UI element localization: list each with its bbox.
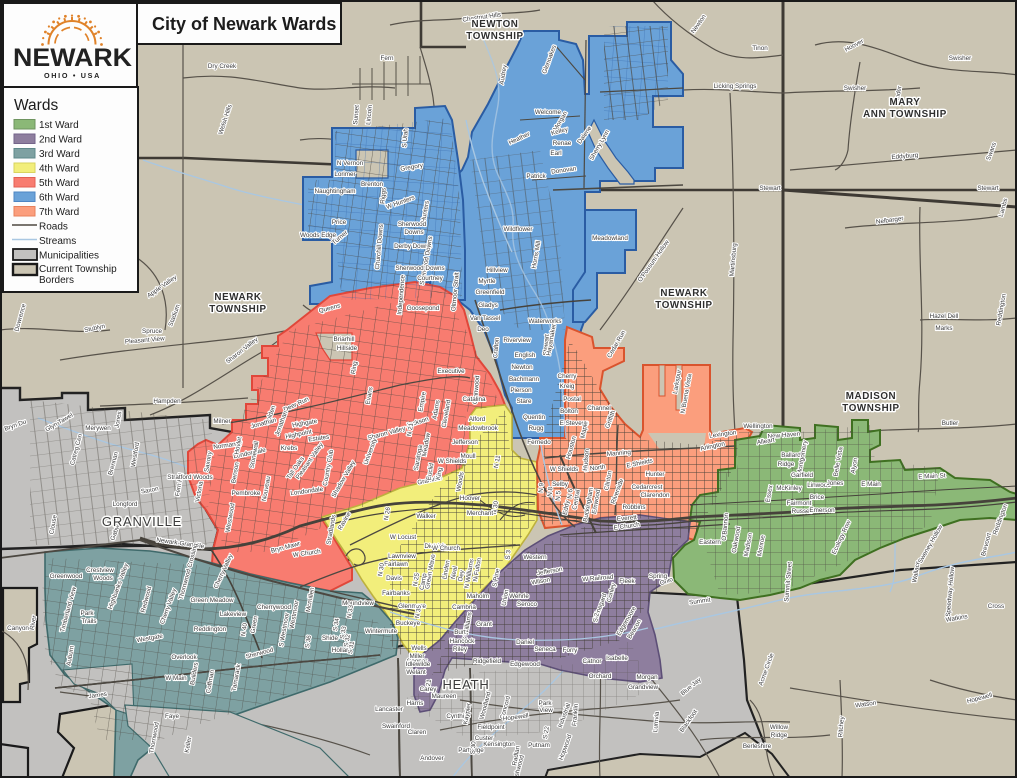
svg-text:Quentin: Quentin [523,414,546,421]
svg-text:Ridge: Ridge [778,461,795,468]
svg-text:Van Tassel: Van Tassel [470,315,500,322]
svg-text:7th Ward: 7th Ward [39,207,79,218]
svg-text:Marks: Marks [935,325,952,332]
svg-text:Davis: Davis [386,575,402,582]
svg-text:Swisher: Swisher [844,85,866,92]
svg-text:Walker: Walker [416,513,435,520]
svg-text:TOWNSHIP: TOWNSHIP [655,300,712,311]
svg-text:Buckeye: Buckeye [396,620,421,627]
svg-text:Hancock: Hancock [450,638,475,645]
svg-text:2nd Ward: 2nd Ward [39,135,82,146]
svg-text:Postal: Postal [563,396,581,403]
svg-text:Tinon: Tinon [752,45,768,52]
svg-text:Channel: Channel [587,405,610,412]
svg-text:Fern: Fern [381,55,394,62]
svg-text:Roads: Roads [39,222,68,233]
svg-text:W Main: W Main [165,675,187,682]
svg-text:Merywen: Merywen [85,425,111,432]
svg-text:S 30: S 30 [469,741,477,755]
svg-text:Forry: Forry [563,647,579,654]
svg-text:Bolton: Bolton [560,408,578,415]
svg-text:Kensington: Kensington [483,741,515,748]
svg-text:Fieldpoint: Fieldpoint [477,724,505,731]
svg-text:Price: Price [332,219,347,226]
svg-text:Jones: Jones [827,480,844,487]
svg-text:Patrick: Patrick [526,173,546,180]
svg-text:Woods: Woods [93,575,112,582]
svg-text:Hazel Dell: Hazel Dell [930,313,959,320]
svg-text:English: English [515,352,536,359]
svg-text:Krebs: Krebs [281,445,297,452]
svg-text:Stare: Stare [516,398,532,405]
svg-text:Shide: Shide [322,635,339,642]
svg-text:Milner: Milner [213,418,230,425]
svg-text:Edgewood: Edgewood [510,661,540,668]
svg-text:Cedarcrest: Cedarcrest [632,484,663,491]
svg-text:Kreig: Kreig [560,383,575,390]
svg-text:Stewart: Stewart [759,185,781,192]
svg-text:Dry Creek: Dry Creek [208,63,237,70]
svg-text:Isabelle: Isabelle [606,655,628,662]
svg-text:Renae: Renae [553,140,572,147]
svg-text:Idlewilde: Idlewilde [406,661,431,668]
svg-text:NEWARK: NEWARK [660,288,707,299]
svg-text:Fairlawn: Fairlawn [384,561,408,568]
svg-text:Spruce: Spruce [142,328,162,335]
svg-text:E Main St: E Main St [918,472,946,480]
svg-text:N 5: N 5 [555,490,563,501]
svg-text:Stratford Woods: Stratford Woods [167,474,212,481]
svg-text:Trails: Trails [81,618,96,625]
svg-text:Municipalities: Municipalities [39,251,99,262]
svg-text:Swainford: Swainford [382,723,410,730]
svg-text:City of Newark Wards: City of Newark Wards [152,14,336,34]
svg-text:Hollar: Hollar [332,647,348,654]
svg-text:Lakeview: Lakeview [220,611,247,618]
svg-text:Wells: Wells [411,645,426,652]
svg-text:Robbins: Robbins [622,504,645,511]
svg-text:Hillside: Hillside [337,345,358,352]
svg-text:Deo: Deo [477,326,489,333]
svg-text:Butler: Butler [942,420,958,427]
svg-text:ANN TOWNSHIP: ANN TOWNSHIP [863,109,947,120]
svg-text:Emerson: Emerson [809,507,835,514]
svg-text:W Shields: W Shields [438,458,466,465]
svg-text:Orchard: Orchard [589,673,612,680]
svg-text:S 3: S 3 [505,549,513,560]
svg-text:Sherwood Downs: Sherwood Downs [395,265,444,272]
svg-text:Eastern: Eastern [699,539,721,546]
svg-text:Cross: Cross [988,603,1004,610]
svg-text:Bachmann: Bachmann [509,376,540,383]
svg-text:Borders: Borders [39,275,74,286]
svg-text:Riverview: Riverview [503,337,531,344]
svg-text:Meadowbrook: Meadowbrook [458,425,498,432]
svg-text:Brenton: Brenton [361,181,384,188]
svg-text:TOWNSHIP: TOWNSHIP [466,31,523,42]
svg-text:Wildflower: Wildflower [503,226,532,233]
svg-text:Stewart: Stewart [977,185,999,192]
svg-text:Welant: Welant [406,669,426,676]
svg-text:Seneca: Seneca [534,646,556,653]
svg-text:Greenfield: Greenfield [475,289,505,296]
svg-text:Reddington: Reddington [194,626,227,633]
svg-text:Daniel: Daniel [516,639,534,646]
svg-text:NEWARK: NEWARK [214,292,261,303]
svg-text:Waterworks: Waterworks [528,318,561,325]
svg-text:Pierson: Pierson [510,387,532,394]
svg-text:Wellington: Wellington [743,423,773,430]
svg-text:N 6: N 6 [567,488,575,499]
svg-text:Woods Edge: Woods Edge [300,232,336,239]
svg-text:Green Meadow: Green Meadow [190,597,234,604]
svg-text:Welcome: Welcome [535,109,562,116]
svg-text:Western: Western [523,554,547,561]
svg-text:Goosepond: Goosepond [407,305,440,312]
svg-text:3rd Ward: 3rd Ward [39,149,80,160]
svg-text:Berleshire: Berleshire [743,743,772,750]
svg-text:Burt: Burt [454,629,466,636]
svg-text:Wehrle: Wehrle [509,593,529,600]
svg-text:W Locust: W Locust [390,534,416,541]
svg-text:Grandview: Grandview [628,684,659,691]
svg-text:Faye: Faye [165,713,179,720]
svg-text:Seroco: Seroco [517,601,537,608]
svg-text:Ridge: Ridge [771,732,788,739]
svg-text:Willow: Willow [770,724,789,731]
svg-text:Lorimer: Lorimer [334,171,355,178]
svg-text:Streams: Streams [39,236,76,247]
svg-text:Riley: Riley [453,646,468,653]
svg-text:HEATH: HEATH [442,677,489,692]
svg-text:Merchant: Merchant [467,510,493,517]
svg-text:W Shields: W Shields [550,466,578,473]
svg-text:Greenwood: Greenwood [50,573,83,580]
svg-text:E Main: E Main [861,481,881,488]
svg-text:Naughtingham: Naughtingham [315,188,356,195]
svg-text:Newton: Newton [511,364,533,371]
svg-text:Morgan: Morgan [636,674,658,681]
svg-text:Lawnview: Lawnview [388,553,416,560]
svg-text:Hillview: Hillview [486,267,508,274]
svg-text:Alford: Alford [469,416,486,423]
svg-text:TOWNSHIP: TOWNSHIP [209,304,266,315]
svg-text:Courtney: Courtney [417,275,443,282]
svg-text:Downs: Downs [404,229,423,236]
svg-text:TOWNSHIP: TOWNSHIP [842,403,899,414]
svg-text:Jefferson: Jefferson [452,439,478,446]
svg-text:Catalina: Catalina [462,396,486,403]
svg-text:Clarendon: Clarendon [640,492,670,499]
svg-text:Cherrywood: Cherrywood [257,604,291,611]
svg-text:Cambria: Cambria [452,604,476,611]
svg-text:McKinley: McKinley [776,485,802,492]
svg-text:Park: Park [539,700,553,707]
svg-text:Garfield: Garfield [791,472,814,479]
svg-text:Lancaster: Lancaster [375,706,403,713]
svg-text:Maureen: Maureen [432,693,457,700]
svg-text:N 8: N 8 [547,486,555,497]
svg-text:Overlook: Overlook [171,654,197,661]
svg-text:1st Ward: 1st Ward [39,120,79,131]
svg-text:Fleek: Fleek [619,578,635,585]
svg-text:Riggs: Riggs [379,188,387,205]
svg-text:Selby: Selby [552,481,569,488]
svg-text:Grant: Grant [476,621,492,628]
svg-text:Fernedo: Fernedo [527,439,551,446]
svg-text:Catnor: Catnor [583,658,602,665]
svg-text:W Church: W Church [432,545,460,552]
svg-text:Swisher: Swisher [949,55,971,62]
svg-text:Earl: Earl [550,150,561,157]
svg-text:Current Township: Current Township [39,264,117,275]
svg-text:Putnam: Putnam [528,742,550,749]
svg-text:Spring: Spring [649,573,668,580]
svg-text:Longford: Longford [113,501,138,508]
svg-text:NEWARK: NEWARK [13,44,132,72]
svg-text:Pembroke: Pembroke [232,490,261,497]
svg-text:Carey: Carey [420,686,438,693]
svg-text:Claren: Claren [408,729,427,736]
svg-text:Park: Park [81,610,95,617]
svg-text:Sherwood: Sherwood [398,221,427,228]
svg-text:Executive: Executive [437,368,465,375]
svg-text:5th Ward: 5th Ward [39,178,79,189]
svg-text:GRANVILLE: GRANVILLE [102,514,182,529]
svg-text:N 9: N 9 [538,482,546,493]
svg-text:Meadowland: Meadowland [592,235,628,242]
svg-text:Maholm: Maholm [467,593,489,600]
svg-text:Cherry: Cherry [558,373,578,380]
svg-text:Brice: Brice [810,494,825,501]
svg-text:Hoover: Hoover [460,495,480,502]
svg-text:Briarhill: Briarhill [334,336,355,343]
svg-text:Canyon: Canyon [7,625,29,632]
svg-text:View: View [539,707,553,714]
svg-text:MARY: MARY [890,97,921,108]
svg-text:Crestview: Crestview [86,567,114,574]
svg-text:Harris: Harris [407,700,424,707]
svg-text:4th Ward: 4th Ward [39,164,79,175]
svg-text:Gladys: Gladys [478,302,498,309]
svg-text:Licking Springs: Licking Springs [714,83,757,90]
svg-text:Andover: Andover [420,755,443,762]
svg-text:MADISON: MADISON [846,391,896,402]
svg-text:Moundview: Moundview [342,600,374,607]
svg-text:N Vernon: N Vernon [337,160,364,167]
svg-text:Myrtle: Myrtle [478,278,496,285]
svg-text:Fairmont: Fairmont [787,500,812,507]
svg-text:6th Ward: 6th Ward [39,193,79,204]
svg-text:Hunter: Hunter [646,471,665,478]
svg-text:NEWTON: NEWTON [472,19,519,30]
svg-text:OHIO • USA: OHIO • USA [44,71,101,80]
svg-text:Ridgefield: Ridgefield [473,658,502,665]
svg-text:Miller: Miller [409,653,424,660]
svg-text:Fairbanks: Fairbanks [382,590,410,597]
svg-text:Wards: Wards [14,97,58,114]
svg-text:Rugg: Rugg [528,425,544,432]
svg-text:Wintermute: Wintermute [365,628,398,635]
svg-text:Hampden: Hampden [153,398,181,405]
